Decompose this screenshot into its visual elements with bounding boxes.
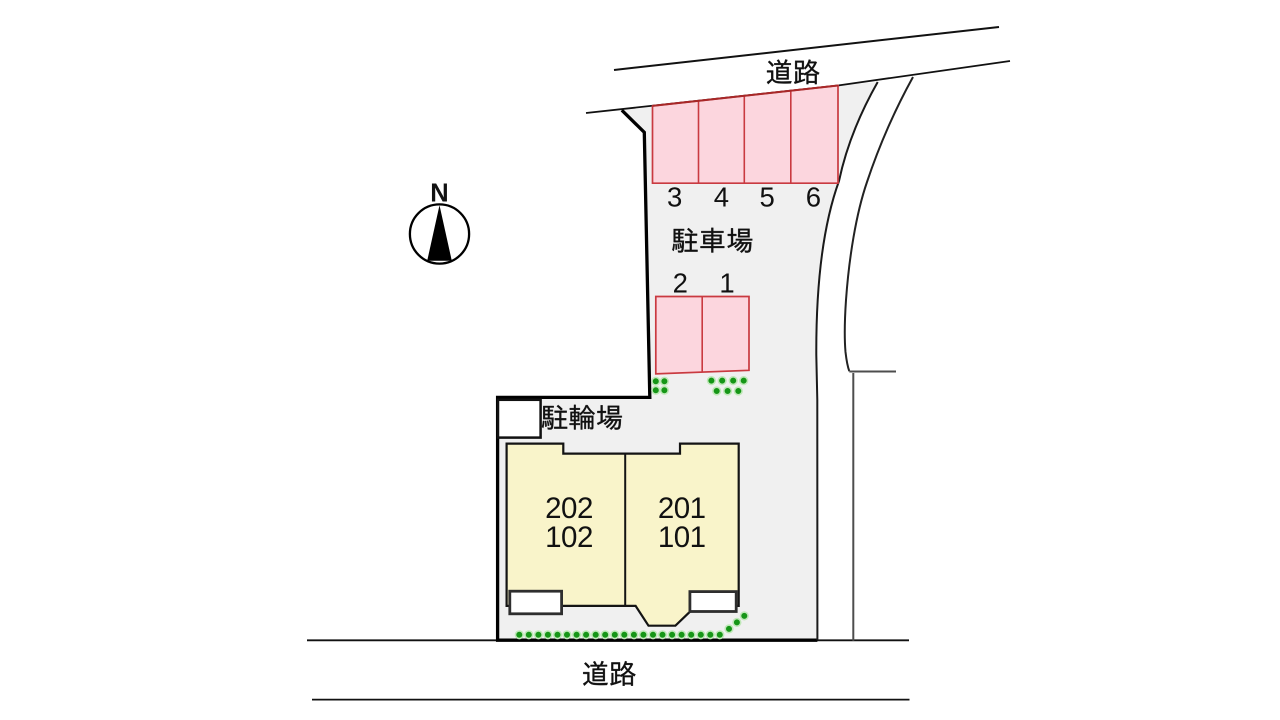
svg-text:202: 202 [545, 492, 593, 525]
svg-text:102: 102 [545, 521, 593, 554]
svg-text:4: 4 [714, 182, 729, 213]
svg-text:3: 3 [667, 182, 682, 213]
svg-text:N: N [430, 180, 448, 208]
svg-text:1: 1 [719, 268, 734, 299]
svg-text:5: 5 [760, 182, 775, 213]
svg-text:201: 201 [658, 492, 706, 525]
svg-text:6: 6 [806, 182, 821, 213]
svg-text:2: 2 [673, 268, 688, 299]
svg-text:101: 101 [658, 521, 706, 554]
